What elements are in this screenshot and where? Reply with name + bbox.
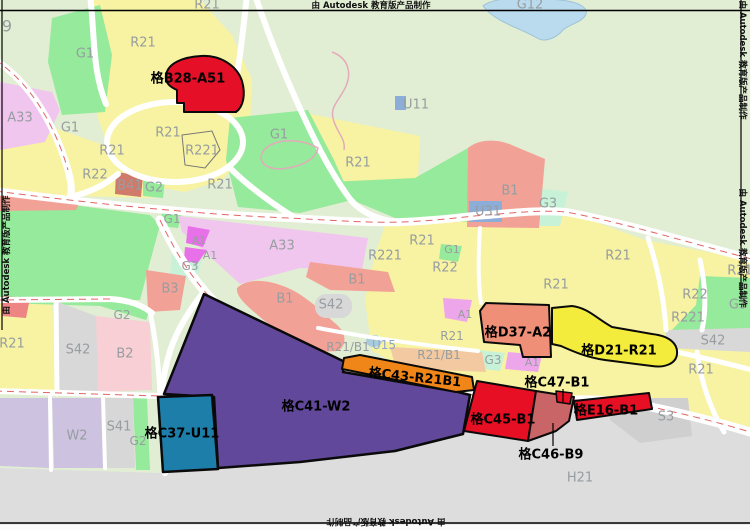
zone-label-S3: S3 [658, 410, 675, 425]
zone-label-B41: B41 [117, 179, 142, 194]
zone-label-G1: G1 [270, 128, 288, 143]
parcel-c47-b1[interactable] [556, 391, 572, 404]
parcel-label-C45-B1: 格C45-B1 [471, 412, 536, 428]
watermark-Autodesk: 由 Autodesk 教育版产品制作 [737, 188, 748, 308]
zone-label-R221: R221 [368, 249, 402, 264]
zone-label-A1: A1 [192, 234, 207, 247]
zone-label-B1: B1 [348, 273, 365, 288]
zone-label-R21B1: R21/B1 [326, 340, 370, 354]
parcel-label-C41-W2: 格C41-W2 [282, 399, 351, 415]
zone-label-R21: R21 [605, 249, 631, 264]
zone-label-A33: A33 [269, 239, 294, 254]
zone-label-A33: A33 [7, 111, 32, 126]
zone-label-U31: U31 [475, 205, 501, 220]
zone-label-A1: A1 [458, 308, 473, 321]
zoning-map: R219G1R21G12U11A33G1R21R21R221R21G1R21R2… [0, 0, 750, 530]
road [479, 228, 481, 303]
zone-label-R21: R21 [688, 363, 714, 378]
zone-label-G3: G3 [485, 353, 502, 367]
zone-label-A1: A1 [525, 356, 540, 369]
zone-label-A1: A1 [203, 249, 218, 262]
map-canvas[interactable]: R219G1R21G12U11A33G1R21R21R221R21G1R21R2… [0, 0, 750, 530]
zone-label-R21: R21 [155, 126, 181, 141]
watermark-Autodesk: 由 Autodesk 教育版产品制作 [311, 0, 431, 11]
parcel-label-E16-B1: 格E16-B1 [574, 403, 638, 419]
zone-label-S42: S42 [319, 298, 344, 313]
zone-label-U11: U11 [403, 98, 429, 113]
zone-label-R221: R221 [185, 144, 219, 159]
zone-label-R21: R21 [409, 234, 435, 249]
zone-label-R21: R21 [345, 156, 371, 171]
parcel-label-B28-A51: 格B28-A51 [151, 71, 226, 87]
zone-label-R22: R22 [82, 168, 108, 183]
road [56, 300, 57, 394]
parcel-label-D21-R21: 格D21-R21 [581, 343, 656, 359]
zone-label-H21: H21 [567, 471, 593, 486]
parcel-label-D37-A2: 格D37-A2 [485, 325, 551, 341]
zone-label-B1: B1 [276, 292, 293, 307]
watermark-Autodesk: 由 Autodesk 教育版产品制作 [1, 195, 12, 315]
zone-label-R21: R21 [543, 278, 569, 293]
zone-label-R22: R22 [432, 261, 458, 276]
parcel-label-C37-U11: 格C37-U11 [145, 426, 220, 442]
zone-label-R21: R21 [0, 337, 25, 352]
zone-w2-a [0, 398, 50, 468]
zone-label-R21: R21 [194, 0, 220, 13]
zone-label-G1: G1 [76, 47, 94, 62]
road [50, 397, 51, 470]
zone-label-G2: G2 [145, 181, 163, 196]
zone-label-G3: G3 [539, 197, 557, 212]
watermark-Autodesk: 由 Autodesk 教育版产品制作 [326, 516, 446, 527]
zone-label-G2: G2 [114, 308, 131, 322]
zone-label-9: 9 [2, 17, 12, 36]
watermark-Autodesk: 由 Autodesk 教育版产品制作 [737, 0, 748, 120]
parcel-label-C47-B1: 格C47-B1 [525, 375, 590, 391]
zone-label-G1: G1 [164, 212, 181, 226]
zone-label-B2: B2 [116, 347, 133, 362]
zone-label-R21: R21 [207, 178, 233, 193]
zone-label-S41: S41 [107, 420, 132, 435]
zone-g1-west [0, 203, 160, 300]
zone-label-B1: B1 [501, 184, 518, 199]
zone-label-U15: U15 [372, 338, 396, 352]
parcel-label-C46-B9: 格C46-B9 [519, 447, 584, 463]
zone-label-G1: G1 [61, 121, 79, 136]
zone-label-G3: G3 [182, 259, 199, 273]
zone-label-R21: R21 [440, 329, 464, 343]
zone-label-W2: W2 [66, 429, 87, 444]
road [103, 397, 105, 468]
zone-label-R22: R22 [682, 288, 708, 303]
zone-label-R21: R21 [99, 144, 125, 159]
zone-label-R21: R21 [130, 36, 156, 51]
zone-label-S42: S42 [66, 343, 91, 358]
zone-label-R21B1: R21/B1 [417, 348, 461, 362]
zone-label-S42: S42 [701, 334, 726, 349]
zone-label-G1: G1 [444, 243, 460, 256]
zone-label-B3: B3 [161, 282, 178, 297]
zone-label-R221: R221 [671, 311, 705, 326]
zone-label-G12: G12 [517, 0, 544, 13]
